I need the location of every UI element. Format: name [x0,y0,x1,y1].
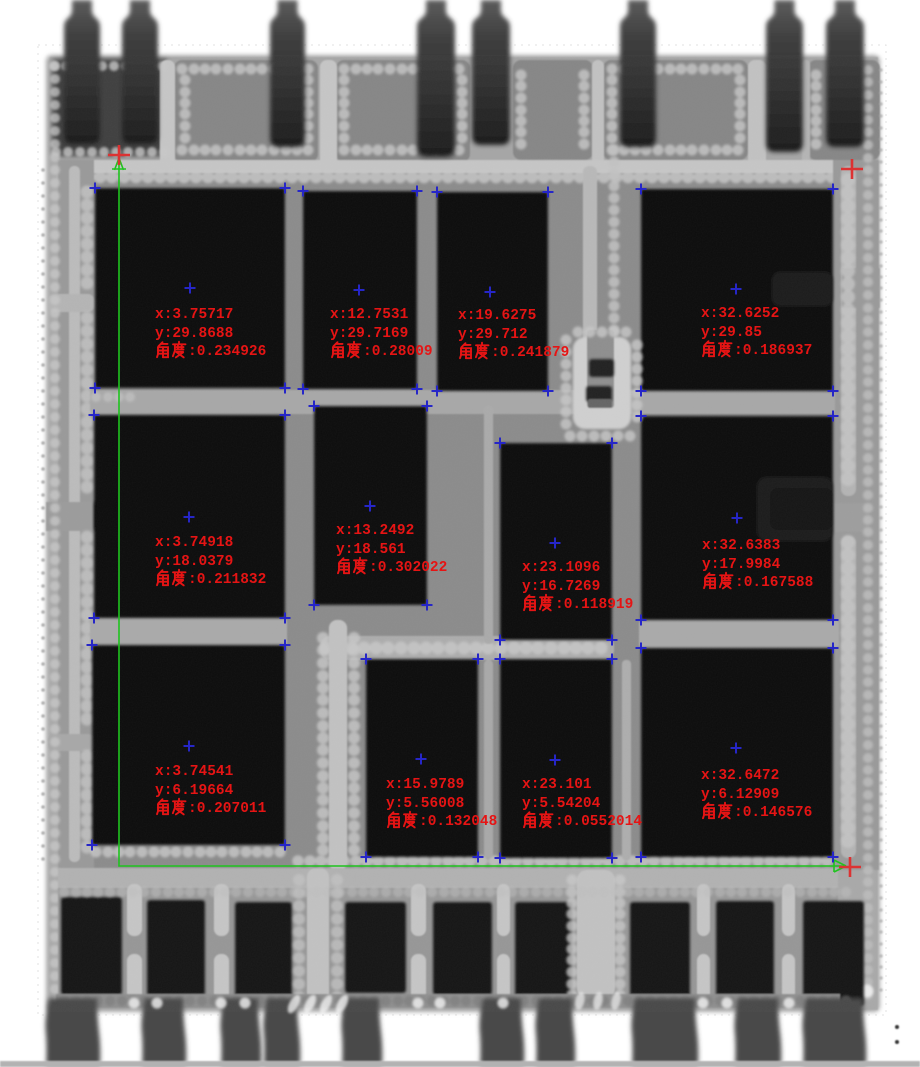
svg-text:x:32.6252: x:32.6252 [701,306,779,322]
svg-text:x:3.75717: x:3.75717 [155,307,233,323]
svg-text:x:23.1096: x:23.1096 [522,560,600,576]
svg-text:x:23.101: x:23.101 [522,777,592,793]
svg-text:x:19.6275: x:19.6275 [458,308,536,324]
svg-text::0.118919: :0.118919 [555,597,633,613]
svg-text:x:3.74918: x:3.74918 [155,535,233,551]
svg-text:x:13.2492: x:13.2492 [336,523,414,539]
svg-text:x:32.6383: x:32.6383 [702,538,780,554]
svg-text:x:32.6472: x:32.6472 [701,768,779,784]
svg-text:x:3.74541: x:3.74541 [155,764,234,780]
svg-text::0.186937: :0.186937 [734,343,812,359]
svg-text:y:5.54204: y:5.54204 [522,796,601,812]
svg-text::0.302022: :0.302022 [369,560,447,576]
svg-text:x:12.7531: x:12.7531 [330,307,409,323]
svg-text::0.211832: :0.211832 [188,572,266,588]
svg-text:y:6.12909: y:6.12909 [701,787,779,803]
svg-text:y:29.85: y:29.85 [701,325,762,341]
svg-text:y:16.7269: y:16.7269 [522,579,600,595]
svg-text:y:6.19664: y:6.19664 [155,783,234,799]
svg-text::0.146576: :0.146576 [734,805,812,821]
svg-text:y:17.9984: y:17.9984 [702,557,781,573]
svg-text::0.207011: :0.207011 [188,801,267,817]
svg-text::0.132048: :0.132048 [419,814,497,830]
svg-text::0.234926: :0.234926 [188,344,266,360]
svg-text::0.0552014: :0.0552014 [555,814,642,830]
svg-text::0.28009: :0.28009 [363,344,433,360]
svg-text:y:18.561: y:18.561 [336,542,406,558]
svg-text:y:29.7169: y:29.7169 [330,326,408,342]
svg-text:y:29.712: y:29.712 [458,327,528,343]
svg-text::0.167588: :0.167588 [735,575,813,591]
svg-text:y:5.56008: y:5.56008 [386,796,464,812]
svg-text::0.241879: :0.241879 [491,345,569,361]
svg-text:x:15.9789: x:15.9789 [386,777,464,793]
svg-text:y:29.8688: y:29.8688 [155,326,233,342]
svg-text:y:18.0379: y:18.0379 [155,554,233,570]
